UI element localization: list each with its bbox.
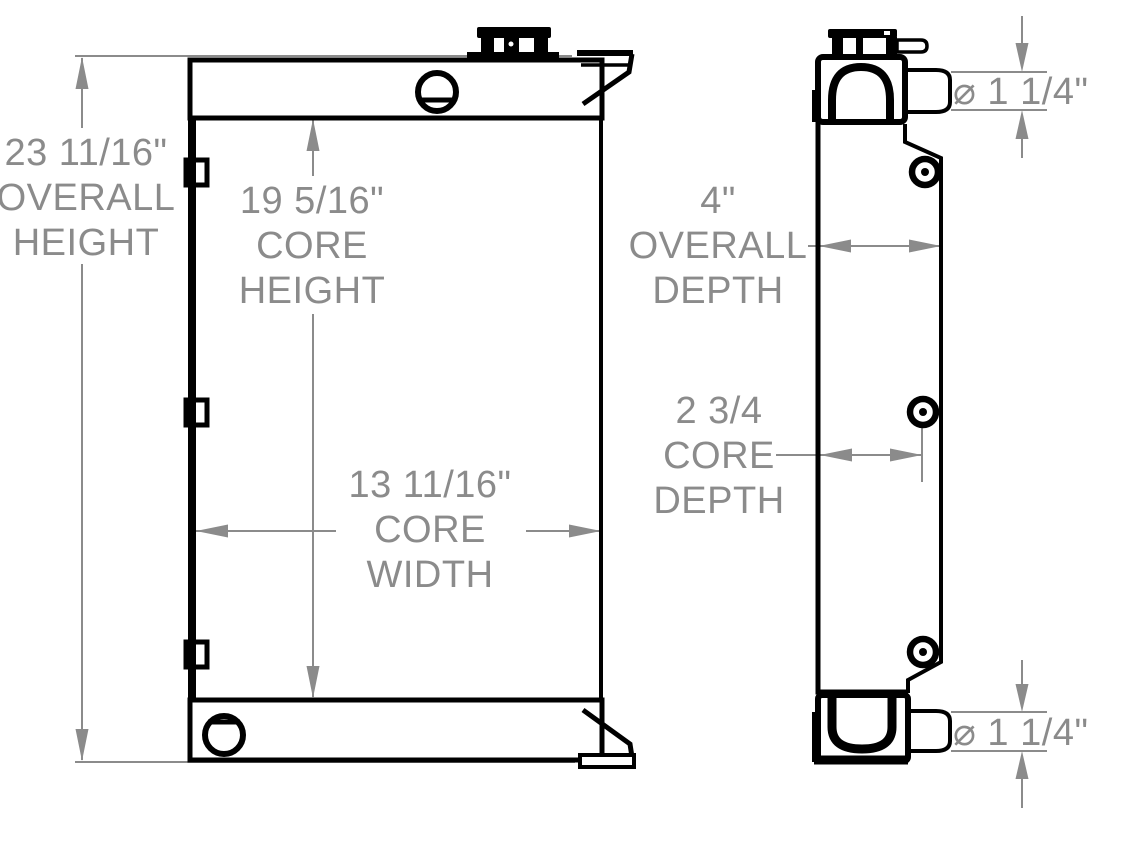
filler-neck-circle (418, 73, 456, 111)
side-body-left-and-bottom (818, 122, 908, 692)
arrowhead-icon (307, 666, 320, 698)
core-height-dimension: 19 5/16" CORE HEIGHT (232, 119, 394, 698)
overall-height-value: 23 11/16" (4, 132, 167, 174)
overall-height-label-line1: OVERALL (0, 177, 175, 219)
arrowhead-icon (909, 240, 941, 253)
bracket-foot (580, 755, 634, 767)
bottom-tank-side (812, 695, 908, 762)
core-left-channel (188, 118, 196, 700)
arrowhead-icon (569, 525, 601, 538)
drain-plug (205, 716, 243, 754)
side-cap-notch (884, 31, 890, 35)
core-width-label-line1: CORE (374, 509, 486, 551)
bottom-tank (190, 700, 602, 760)
bracket-gusset (583, 710, 632, 757)
arrowhead-icon (1016, 110, 1029, 139)
arrowhead-icon (1016, 43, 1029, 72)
bottom-port-diameter-dimension: ⌀ 1 1/4" (951, 660, 1088, 808)
top-port-diameter-dimension: ⌀ 1 1/4" (951, 16, 1088, 158)
core-height-label-line2: HEIGHT (239, 270, 386, 312)
core-height-value: 19 5/16" (240, 180, 384, 222)
arrowhead-icon (820, 449, 852, 462)
core-depth-dimension: 2 3/4 CORE DEPTH (653, 390, 922, 522)
arrowhead-icon (76, 729, 89, 761)
overall-depth-label-line1: OVERALL (629, 225, 808, 267)
overall-height-label-line2: HEIGHT (13, 222, 160, 264)
core-depth-value: 2 3/4 (675, 390, 762, 432)
overall-height-dimension: 23 11/16" OVERALL HEIGHT (0, 56, 575, 762)
overall-depth-dimension: 4" OVERALL DEPTH (629, 180, 941, 312)
top-tank (190, 60, 602, 118)
cap-rivet (509, 42, 514, 47)
arrowhead-icon (890, 449, 922, 462)
bolt-center (919, 408, 927, 416)
arrowhead-icon (1016, 684, 1029, 712)
core-width-value: 13 11/16" (348, 464, 511, 506)
arrowhead-icon (1016, 751, 1029, 779)
bolt-center (921, 168, 929, 176)
top-hose-port (905, 70, 950, 112)
arrowhead-icon (307, 119, 320, 151)
side-cap-post (886, 37, 897, 56)
arrowhead-icon (76, 57, 89, 89)
top-tank-side-flange (812, 90, 820, 122)
top-port-diameter-value: ⌀ 1 1/4" (953, 71, 1088, 113)
side-view (812, 29, 950, 762)
front-view (186, 27, 634, 767)
overall-depth-label-line2: DEPTH (652, 270, 783, 312)
bolt (910, 639, 936, 665)
filler-neck (418, 73, 456, 111)
core-depth-label-line1: CORE (663, 435, 775, 477)
side-cap (828, 29, 897, 56)
core-height-label-line1: CORE (256, 225, 368, 267)
bottom-tank-side-flange (812, 712, 820, 762)
radiator-drawing: 23 11/16" OVERALL HEIGHT 19 5/16" CORE H… (0, 0, 1134, 845)
cap-post (534, 36, 548, 54)
core-depth-label-line2: DEPTH (653, 480, 784, 522)
core-width-label-line2: WIDTH (366, 554, 493, 596)
core-width-dimension: 13 11/16" CORE WIDTH (196, 464, 601, 598)
bottom-port-diameter-value: ⌀ 1 1/4" (953, 712, 1088, 754)
side-cap-post (832, 37, 843, 56)
cap-post (481, 36, 494, 54)
radiator-drawing-page: 23 11/16" OVERALL HEIGHT 19 5/16" CORE H… (0, 0, 1134, 845)
bolt (910, 399, 936, 425)
arrowhead-icon (196, 525, 228, 538)
side-cap-post (856, 37, 863, 56)
bolt-center (919, 648, 927, 656)
top-tank-side (812, 57, 905, 122)
pressure-cap (467, 27, 559, 58)
overflow-tube (897, 40, 927, 52)
bolt (912, 159, 938, 185)
arrowhead-icon (819, 240, 851, 253)
overall-depth-value: 4" (700, 180, 736, 222)
bottom-right-bracket (580, 710, 634, 767)
bottom-hose-port (908, 711, 950, 751)
